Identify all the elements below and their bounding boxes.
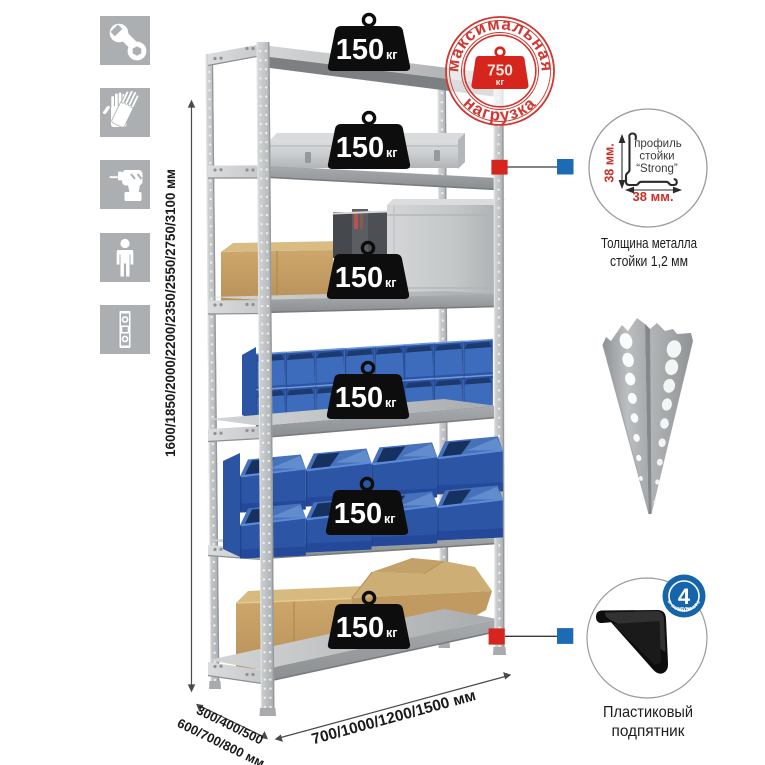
svg-text:кг: кг: [385, 396, 396, 410]
svg-text:кг: кг: [384, 512, 395, 526]
svg-text:кг: кг: [385, 276, 396, 290]
svg-text:кг: кг: [386, 146, 397, 160]
svg-text:стойки: стойки: [639, 151, 674, 163]
svg-text:150: 150: [335, 382, 383, 414]
svg-text:150: 150: [334, 498, 382, 530]
svg-text:150: 150: [336, 612, 384, 644]
svg-text:профиль: профиль: [634, 138, 682, 150]
svg-text:150: 150: [336, 34, 384, 66]
svg-text:подпятник: подпятник: [612, 723, 686, 740]
svg-text:38 мм.: 38 мм.: [603, 143, 617, 182]
svg-text:кг: кг: [496, 77, 505, 88]
svg-text:“Strong”: “Strong”: [636, 163, 678, 175]
svg-text:Толщина металла: Толщина металла: [601, 235, 697, 252]
svg-text:стойки 1,2 мм: стойки 1,2 мм: [610, 253, 688, 270]
svg-text:1600/1850/2000/2200/2350/2550/: 1600/1850/2000/2200/2350/2550/2750/3100 …: [163, 169, 178, 457]
svg-text:150: 150: [336, 132, 384, 164]
svg-text:38 мм.: 38 мм.: [633, 189, 674, 204]
svg-text:кг: кг: [386, 48, 397, 62]
svg-text:4: 4: [678, 584, 691, 609]
svg-text:Пластиковый: Пластиковый: [603, 704, 693, 721]
svg-text:кг: кг: [386, 626, 397, 640]
svg-text:150: 150: [335, 262, 383, 294]
